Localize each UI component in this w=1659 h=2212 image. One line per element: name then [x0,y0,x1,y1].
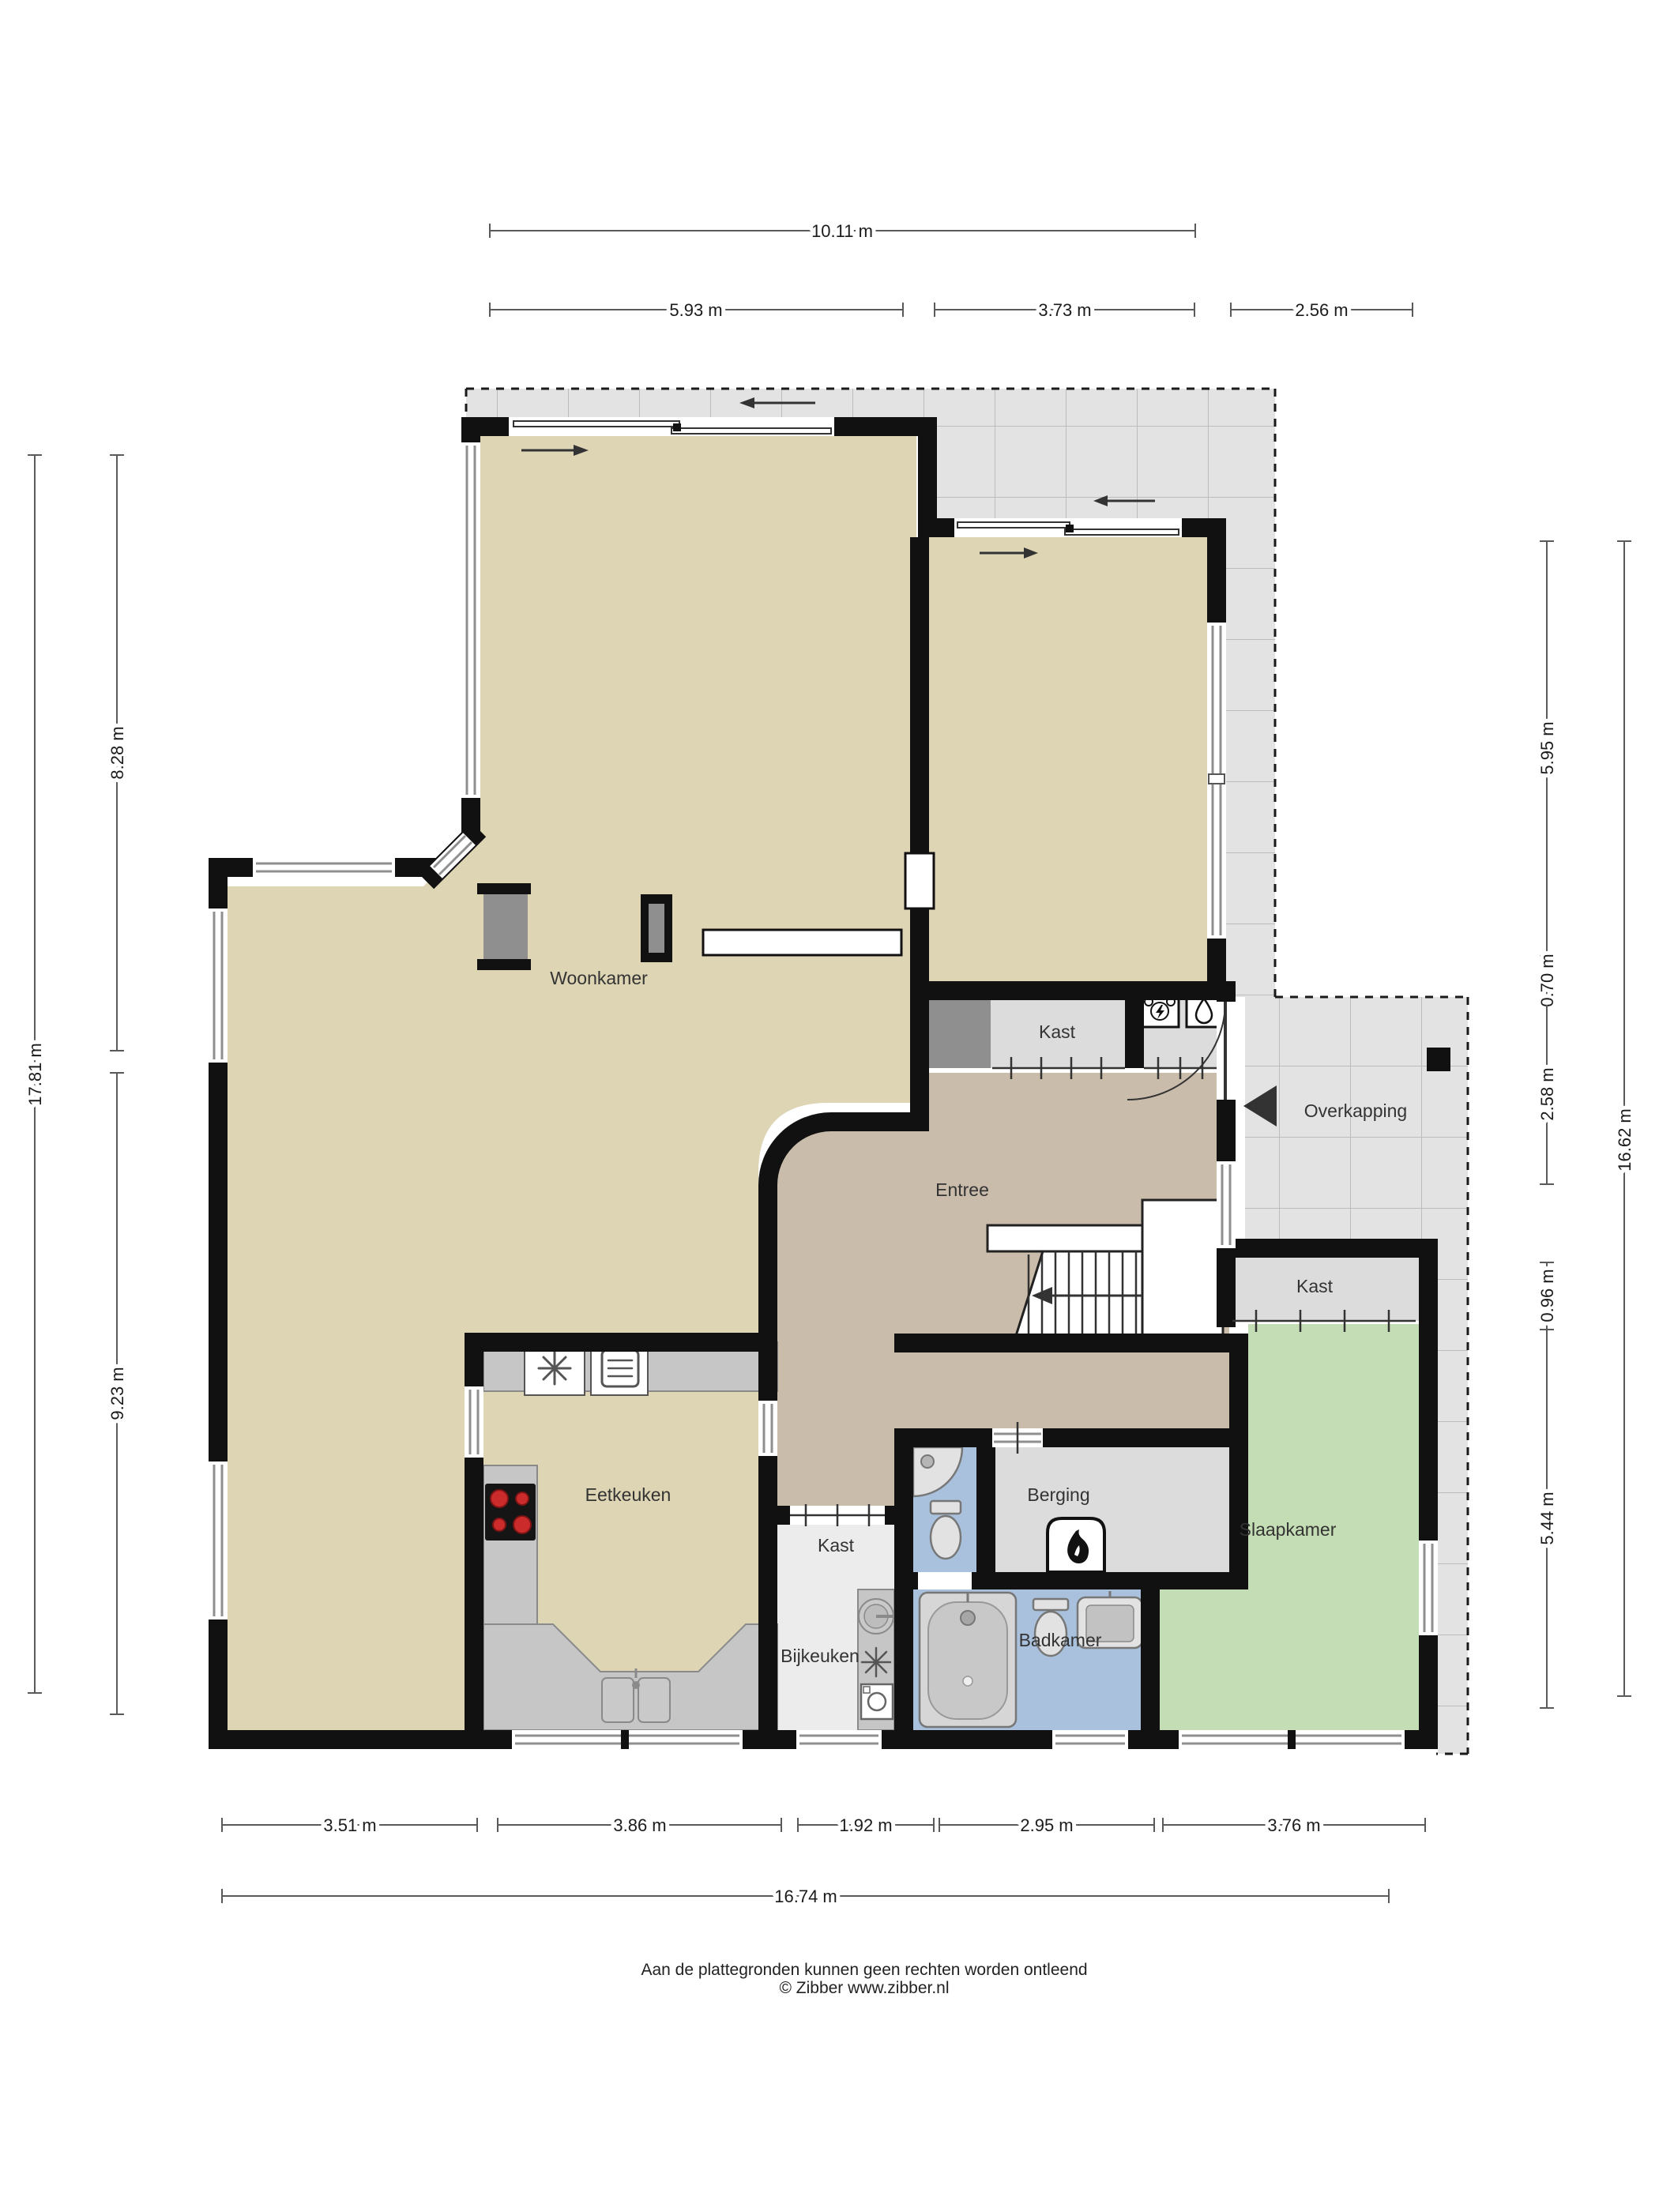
dim-bottom-1: 3.51 m [222,1815,477,1835]
dim-top-total: 10.11 m [490,221,1195,241]
dim-right-1: 5.95 m [1537,541,1557,956]
floorplan-canvas: Woonkamer Entree Eetkeuken Slaapkamer Ba… [0,0,1659,2212]
window-eetkeuken-entree [758,1401,777,1456]
understair-void [1142,1200,1223,1341]
room-label-bijkeuken: Bijkeuken [781,1646,860,1666]
dim-bottom-2: 3.86 m [498,1815,781,1835]
room-label-woonkamer: Woonkamer [550,968,648,988]
dim-left-2: 9.23 m [107,1073,127,1714]
svg-text:2.95 m: 2.95 m [1020,1815,1073,1835]
window-entree-east [1217,1161,1236,1248]
stair-landing [987,1225,1142,1251]
ceiling-beam [703,930,901,955]
floor-woonkamer-right [929,528,1207,981]
footer-copyright: © Zibber www.zibber.nl [779,1979,949,1997]
svg-text:1.92 m: 1.92 m [839,1815,892,1835]
dim-left-1: 8.28 m [107,455,127,1051]
duct-block [929,1000,991,1068]
window-right-room-east [1207,623,1226,939]
footer: Aan de plattegronden kunnen geen rechten… [641,1961,1087,1997]
room-label-berging: Berging [1027,1484,1089,1505]
window-slaapkamer-south [1179,1730,1405,1749]
svg-text:3.76 m: 3.76 m [1267,1815,1320,1835]
dim-right-total: 16.62 m [1615,541,1635,1696]
room-label-slaapkamer: Slaapkamer [1240,1519,1337,1540]
svg-text:3.86 m: 3.86 m [613,1815,666,1835]
room-label-badkamer: Badkamer [1019,1630,1102,1650]
dim-top-2: 3.73 m [935,300,1194,320]
window-west-lower [209,1461,228,1619]
room-label-eetkeuken: Eetkeuken [585,1484,671,1505]
svg-text:9.23 m: 9.23 m [107,1367,127,1420]
dim-right-2: 0.70 m [1537,954,1557,1006]
boiler-flame-icon [1048,1518,1104,1572]
svg-text:5.95 m: 5.95 m [1537,721,1557,774]
dim-top-1: 5.93 m [490,300,903,320]
svg-text:16.62 m: 16.62 m [1615,1108,1635,1172]
svg-text:8.28 m: 8.28 m [107,726,127,779]
svg-text:5.93 m: 5.93 m [669,300,722,320]
dim-bottom-5: 3.76 m [1163,1815,1425,1835]
window-woonkamer-west [461,442,480,798]
svg-text:5.44 m: 5.44 m [1537,1492,1557,1544]
floor-berging [995,1447,1229,1572]
svg-text:10.11 m: 10.11 m [811,221,873,241]
bijkeuken-fixtures [858,1589,894,1730]
footer-disclaimer: Aan de plattegronden kunnen geen rechten… [641,1961,1087,1979]
washing-machine-icon [861,1684,893,1719]
window-west-upper [209,908,228,1063]
dim-top-3: 2.56 m [1231,300,1413,320]
window-leftblock-top [253,858,395,877]
window-slaapkamer-east [1419,1540,1438,1635]
window-bijkeuken-south [796,1730,882,1749]
room-label-entree: Entree [935,1179,989,1200]
svg-text:17.81 m: 17.81 m [25,1043,45,1106]
ventilation-icon [862,1648,890,1676]
dim-left-total: 17.81 m [25,455,45,1693]
room-label-kast-slaapkamer: Kast [1296,1276,1334,1296]
dim-right-5: 5.44 m [1537,1330,1557,1708]
opening-eetkeuken-west [465,1386,483,1458]
dim-bottom-4: 2.95 m [939,1815,1154,1835]
window-eetkeuken-south [512,1730,743,1749]
room-label-kast-entree: Kast [1039,1021,1076,1042]
svg-text:0.70 m: 0.70 m [1537,954,1557,1006]
window-badkamer-south [1052,1730,1128,1749]
dim-bottom-total: 16.74 m [222,1887,1389,1906]
wall-niche [905,853,934,908]
room-label-overkapping: Overkapping [1304,1100,1407,1121]
cooktop-icon [485,1484,536,1540]
overkapping-post [1427,1048,1450,1071]
dim-right-3: 2.58 m [1537,1005,1557,1184]
dim-right-4: 0.96 m [1537,1262,1557,1330]
svg-text:0.96 m: 0.96 m [1537,1269,1557,1322]
extractor-hood-icon [539,1352,570,1384]
dim-bottom-3: 1.92 m [798,1815,934,1835]
svg-text:2.58 m: 2.58 m [1537,1067,1557,1120]
bathtub-icon [920,1593,1016,1727]
svg-text:3.51 m: 3.51 m [323,1815,376,1835]
round-sink-icon [859,1599,894,1634]
svg-text:2.56 m: 2.56 m [1295,300,1348,320]
svg-text:16.74 m: 16.74 m [774,1887,837,1906]
toilet-icon [931,1501,961,1559]
room-label-kast-gang: Kast [818,1535,855,1556]
fireplace-block [483,894,528,959]
svg-text:3.73 m: 3.73 m [1038,300,1091,320]
